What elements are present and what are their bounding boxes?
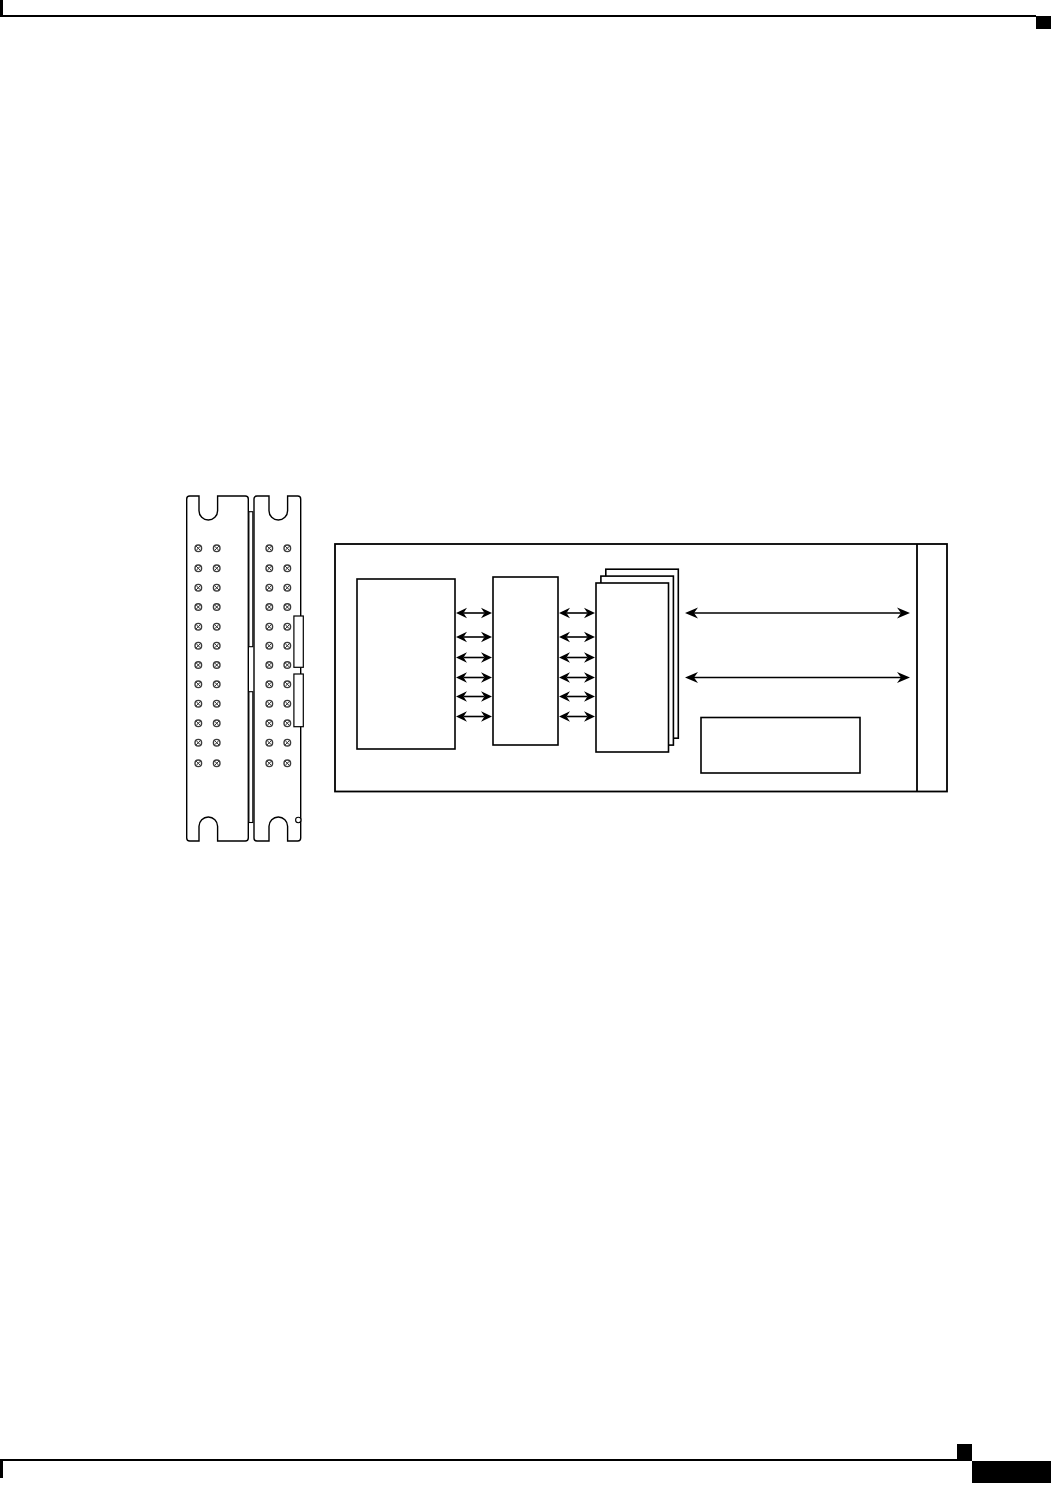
figures-layer [0, 0, 1051, 1485]
faceplate-figure [187, 496, 304, 841]
small-block [701, 718, 860, 774]
manual-page [0, 0, 1051, 1485]
middle-block [493, 577, 558, 745]
left-block [357, 579, 455, 749]
block-diagram-figure [335, 544, 947, 792]
stacked-block-1 [596, 583, 669, 752]
